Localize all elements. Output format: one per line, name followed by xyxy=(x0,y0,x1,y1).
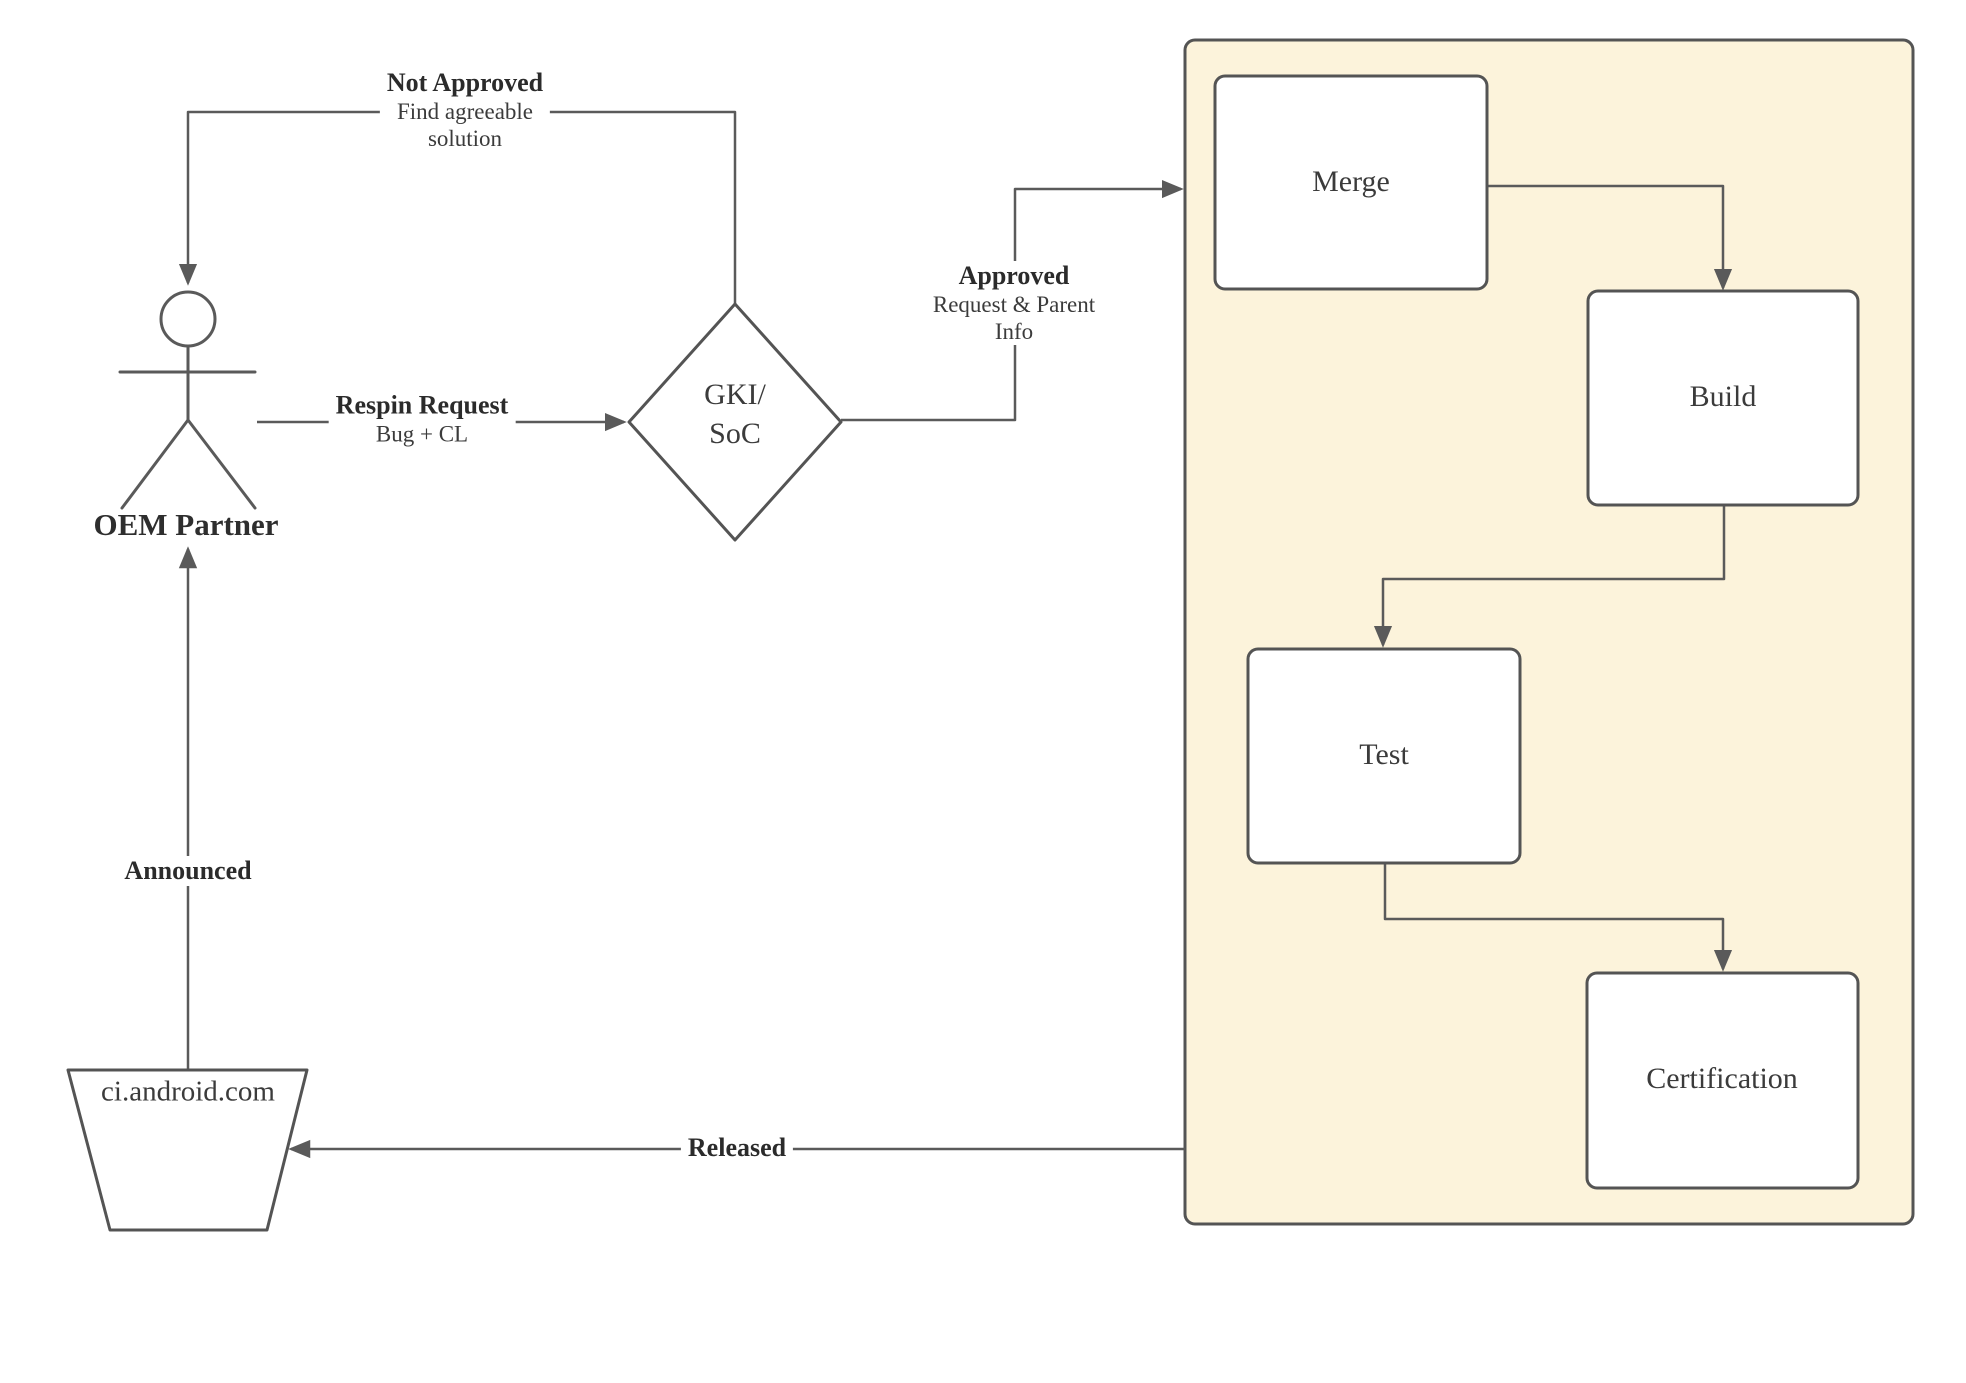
respin-request-edge-label: Respin Request Bug + CL xyxy=(329,391,516,448)
respin-request-subtext: Bug + CL xyxy=(336,421,509,448)
flowchart-canvas: Merge Build Test Certification GKI/ SoC … xyxy=(0,0,1966,1383)
not-approved-subtext-2: solution xyxy=(387,125,543,152)
not-approved-edge-label: Not Approved Find agreeable solution xyxy=(380,68,550,152)
released-edge-label: Released xyxy=(681,1133,793,1163)
approved-edge-label: Approved Request & Parent Info xyxy=(926,261,1102,345)
approved-subtext-2: Info xyxy=(933,318,1095,345)
merge-label: Merge xyxy=(1312,165,1390,199)
diagram-shapes-layer xyxy=(0,0,1966,1383)
oem-partner-label: OEM Partner xyxy=(93,507,278,543)
gki-soc-label-line2: SoC xyxy=(704,414,766,453)
gki-soc-label: GKI/ SoC xyxy=(704,375,766,453)
approved-subtext-1: Request & Parent xyxy=(933,291,1095,318)
respin-request-title: Respin Request xyxy=(336,391,509,421)
approved-title: Approved xyxy=(933,261,1095,291)
certification-label: Certification xyxy=(1646,1062,1798,1096)
test-label: Test xyxy=(1359,738,1409,772)
not-approved-subtext-1: Find agreeable xyxy=(387,98,543,125)
oem-partner-person-icon xyxy=(120,292,255,508)
build-label: Build xyxy=(1690,380,1757,414)
not-approved-title: Not Approved xyxy=(387,68,543,98)
announced-edge-label: Announced xyxy=(117,856,258,886)
gki-soc-label-line1: GKI/ xyxy=(704,375,766,414)
ci-android-label: ci.android.com xyxy=(101,1076,275,1109)
